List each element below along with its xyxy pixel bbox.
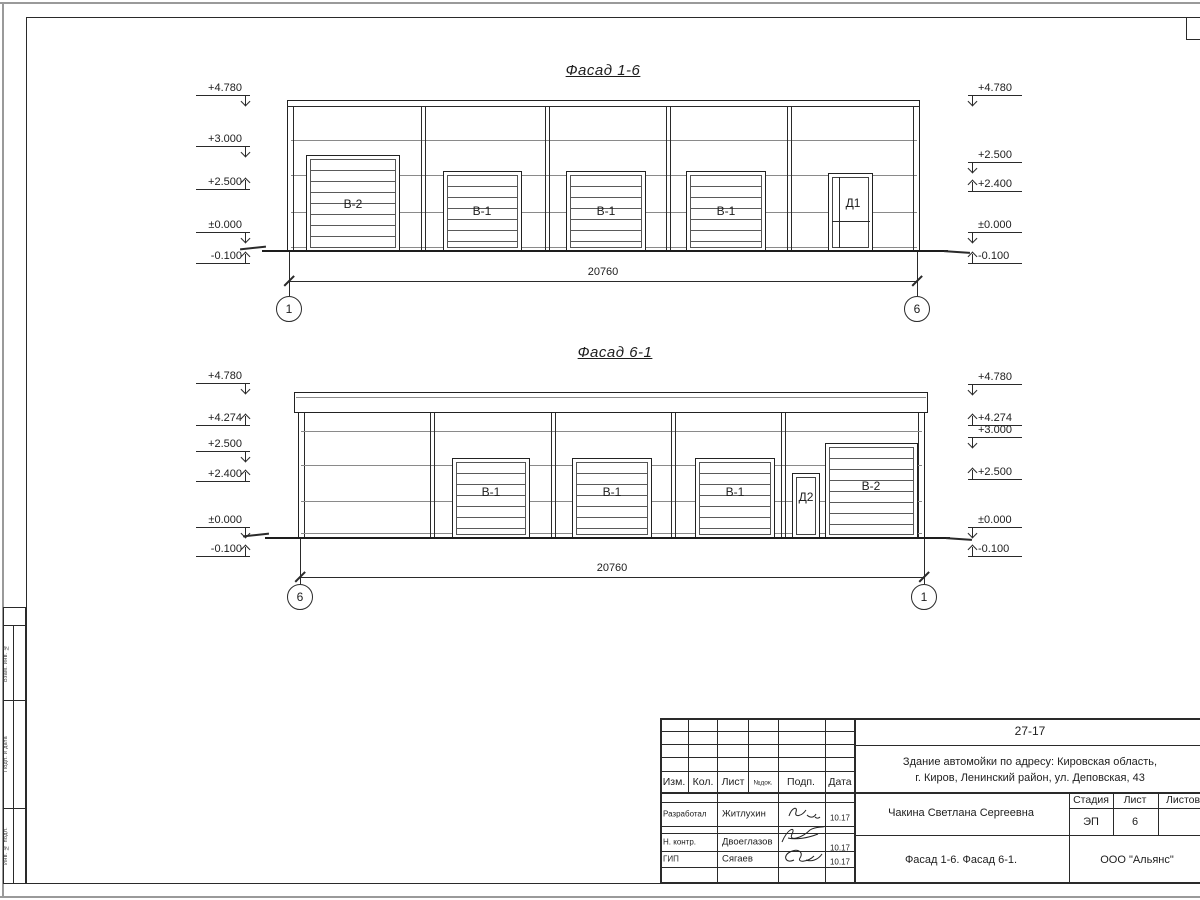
wall-mullion [781, 413, 786, 538]
signature [780, 844, 826, 866]
gate-label: В-2 [862, 479, 881, 493]
side-stamp-divider [13, 625, 14, 884]
drawing-sheet: Взам. инв. № Подп. и дата Инв. № подл. Ф… [0, 0, 1200, 900]
row-date: 10.17 [830, 858, 850, 867]
elevation-mark: +2.400 [968, 178, 1022, 192]
corner-column-line [913, 106, 914, 252]
elevation-mark: -0.100 [968, 250, 1022, 264]
axis-bubble: 1 [911, 584, 937, 610]
sheet-title: Фасад 1-6. Фасад 6-1. [905, 854, 1017, 866]
elevation-value: +2.500 [208, 438, 242, 451]
parapet-band [294, 392, 928, 413]
side-stamp-label: Подп. и дата [3, 703, 13, 805]
elevation-mark: ±0.000 [196, 514, 250, 528]
elevation-value: ±0.000 [978, 219, 1012, 232]
elevation-mark: +4.780 [196, 82, 250, 96]
elevation-mark: +2.500 [196, 176, 250, 190]
dimension-line [300, 577, 925, 578]
gate-label: В-2 [344, 197, 363, 211]
axis-bubble: 6 [287, 584, 313, 610]
titleblock-line [688, 718, 689, 792]
side-stamp-line [3, 625, 26, 626]
elevation-mark: +4.274 [196, 412, 250, 426]
elevation-value: +4.780 [978, 371, 1012, 384]
gate-label: В-1 [717, 204, 736, 218]
elevation-value: +3.000 [978, 424, 1012, 437]
elevation-value: +2.400 [978, 178, 1012, 191]
elevation-value: -0.100 [978, 250, 1009, 263]
dimension-line [289, 281, 918, 282]
door-sidelight-line [839, 177, 840, 248]
elevation-mark: -0.100 [968, 543, 1022, 557]
elevation-value: -0.100 [211, 250, 242, 263]
titleblock-line [660, 792, 1200, 794]
doc-number: 27-17 [1015, 724, 1046, 738]
wall-mullion [551, 413, 556, 538]
extension-line [917, 252, 918, 296]
elevation-value: -0.100 [978, 543, 1009, 556]
door-frame [796, 477, 816, 535]
gate-label: В-1 [597, 204, 616, 218]
door-d2 [792, 473, 820, 539]
elevation-mark: +2.500 [196, 438, 250, 452]
side-stamp-line [3, 700, 26, 701]
wall-mullion [787, 106, 792, 252]
col-data: Дата [828, 776, 851, 788]
sheet-label: Лист [1124, 794, 1147, 806]
side-stamp-label: Взам. инв. № [3, 628, 13, 698]
elevation-value: +3.000 [208, 133, 242, 146]
corner-column-line [293, 106, 294, 252]
titleblock-line [660, 731, 854, 732]
elevation-value: +2.400 [208, 468, 242, 481]
client-name: Чакина Светлана Сергеевна [888, 807, 1034, 819]
titleblock-line [717, 718, 718, 884]
dimension-text: 20760 [562, 562, 662, 574]
elevation-mark: +4.780 [196, 370, 250, 384]
paper-edge-bottom [0, 896, 1200, 898]
facade-1-6-title: Фасад 1-6 [503, 62, 703, 79]
company-name: ООО "Альянс" [1100, 854, 1174, 866]
gate-label: В-1 [482, 485, 501, 499]
paper-edge-top [0, 2, 1200, 4]
elevation-mark: ±0.000 [196, 219, 250, 233]
door-d1 [828, 173, 873, 252]
door-label: Д1 [846, 196, 861, 210]
stage-value: ЭП [1083, 816, 1099, 828]
titleblock-line [660, 802, 854, 803]
elevation-mark: +3.000 [196, 133, 250, 147]
elevation-mark: +2.500 [968, 466, 1022, 480]
extension-line [289, 252, 290, 296]
ground-line [262, 250, 948, 252]
row-role: Н. контр. [663, 838, 696, 847]
ground-line [265, 537, 950, 539]
row-role: Разработал [663, 810, 707, 819]
col-podp: Подп. [787, 776, 815, 788]
titleblock-line [748, 718, 749, 792]
elevation-mark: +2.400 [196, 468, 250, 482]
elevation-mark: -0.100 [196, 250, 250, 264]
elevation-value: +4.274 [208, 412, 242, 425]
row-name: Житлухин [722, 809, 766, 820]
titleblock-line [1069, 792, 1070, 884]
titleblock-line [856, 745, 1200, 746]
elevation-mark: +4.780 [968, 371, 1022, 385]
titleblock-line [856, 835, 1200, 836]
titleblock-line [854, 718, 856, 884]
col-list: Лист [722, 776, 745, 788]
gate-label: В-1 [726, 485, 745, 499]
row-role: ГИП [663, 855, 679, 864]
titleblock-line [660, 771, 854, 772]
wall-mullion [545, 106, 550, 252]
row-date: 10.17 [830, 844, 850, 853]
elevation-mark: +3.000 [968, 424, 1022, 438]
titleblock-line [1158, 792, 1159, 835]
wall-mullion [666, 106, 671, 252]
parapet-inner-line [296, 397, 926, 398]
corner-stamp-box [1186, 17, 1200, 40]
door-label: Д2 [799, 490, 814, 504]
parapet-line [287, 106, 920, 107]
axis-bubble: 1 [276, 296, 302, 322]
col-ndoc: №док. [753, 780, 772, 787]
dimension-text: 20760 [553, 266, 653, 278]
project-address-line1: Здание автомойки по адресу: Кировская об… [903, 756, 1157, 768]
titleblock-line [660, 867, 854, 868]
side-stamp-line [3, 808, 26, 809]
sheets-label: Листов [1166, 794, 1200, 806]
signature [785, 804, 823, 822]
project-address-line2: г. Киров, Ленинский район, ул. Деповская… [915, 772, 1145, 784]
elevation-value: +2.500 [208, 176, 242, 189]
signature [778, 824, 830, 846]
gate-label: В-1 [603, 485, 622, 499]
elevation-value: ±0.000 [208, 219, 242, 232]
titleblock-line [1113, 792, 1114, 835]
elevation-value: ±0.000 [208, 514, 242, 527]
facade-6-1-title: Фасад 6-1 [515, 344, 715, 361]
stage-label: Стадия [1073, 794, 1109, 806]
elevation-mark: -0.100 [196, 543, 250, 557]
elevation-mark: ±0.000 [968, 514, 1022, 528]
sheet-value: 6 [1132, 816, 1138, 828]
panel-joint-line [301, 431, 922, 432]
col-kol: Кол. [693, 776, 714, 788]
titleblock-line [660, 744, 854, 745]
row-name: Двоеглазов [722, 837, 773, 848]
col-izm: Изм. [663, 776, 686, 788]
elevation-value: +4.780 [208, 82, 242, 95]
wall-mullion [421, 106, 426, 252]
gate-label: В-1 [473, 204, 492, 218]
elevation-value: +2.500 [978, 466, 1012, 479]
elevation-mark: +4.780 [968, 82, 1022, 96]
elevation-value: +4.780 [208, 370, 242, 383]
elevation-value: ±0.000 [978, 514, 1012, 527]
elevation-value: +4.780 [978, 82, 1012, 95]
titleblock-line [660, 757, 854, 758]
elevation-value: -0.100 [211, 543, 242, 556]
axis-bubble: 6 [904, 296, 930, 322]
elevation-mark: ±0.000 [968, 219, 1022, 233]
titleblock-line [1069, 808, 1200, 809]
wall-mullion [430, 413, 435, 538]
titleblock-line [778, 718, 779, 884]
side-stamp-label: Инв. № подл. [3, 811, 13, 881]
panel-joint-line [291, 140, 917, 141]
elevation-value: +2.500 [978, 149, 1012, 162]
wall-mullion [671, 413, 676, 538]
door-rail-line [832, 221, 870, 222]
row-date: 10.17 [830, 814, 850, 823]
row-name: Сягаев [722, 854, 753, 865]
elevation-mark: +2.500 [968, 149, 1022, 163]
door-frame [832, 177, 869, 248]
